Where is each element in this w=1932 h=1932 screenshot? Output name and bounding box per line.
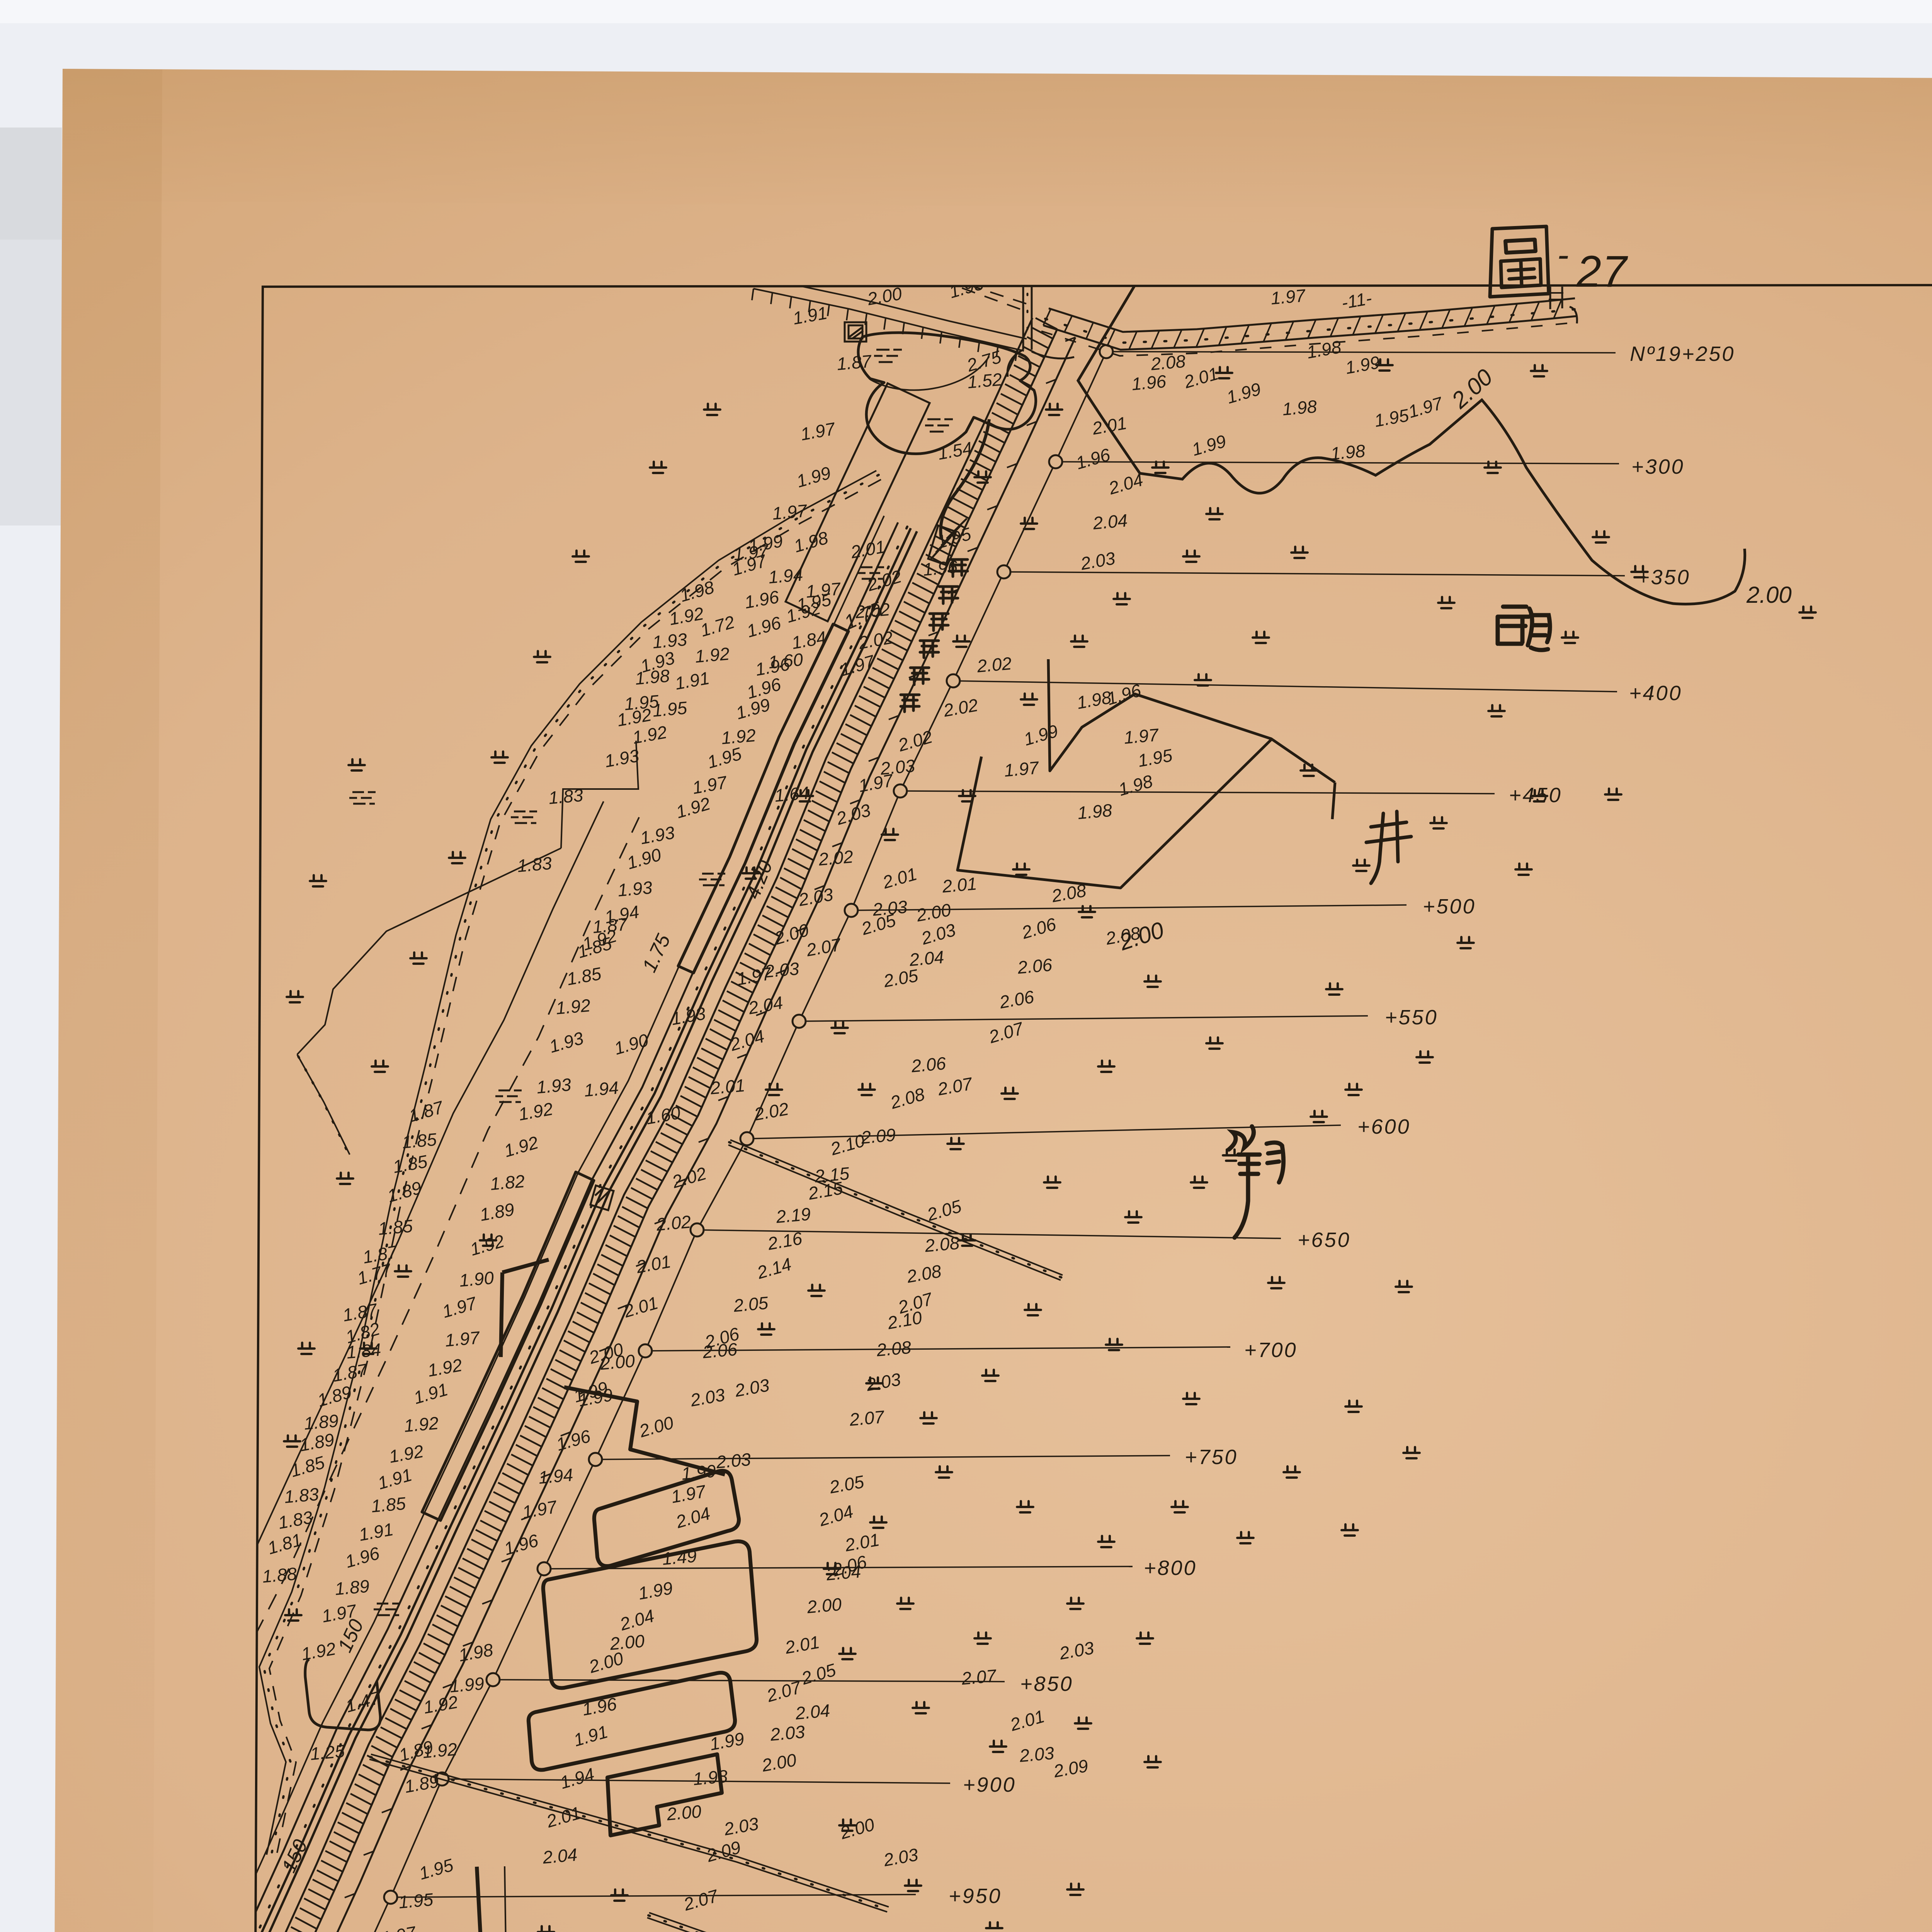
svg-text:1.92: 1.92	[694, 643, 730, 667]
svg-text:2.00: 2.00	[806, 1594, 842, 1617]
svg-text:2.03: 2.03	[763, 958, 800, 981]
svg-text:1.98: 1.98	[1330, 440, 1366, 464]
svg-text:2.04: 2.04	[794, 1700, 831, 1723]
svg-text:+550: +550	[1385, 1006, 1438, 1029]
svg-text:1.92: 1.92	[422, 1739, 458, 1762]
svg-text:+300: +300	[1631, 455, 1685, 478]
svg-text:1.97: 1.97	[1123, 724, 1160, 748]
svg-text:1.87: 1.87	[592, 914, 628, 937]
svg-text:2.05: 2.05	[732, 1293, 769, 1316]
svg-text:2.06: 2.06	[910, 1053, 947, 1076]
svg-text:2.03: 2.03	[1018, 1743, 1055, 1766]
svg-text:1.92: 1.92	[403, 1413, 439, 1436]
svg-text:1.83: 1.83	[516, 853, 553, 876]
svg-text:1.89: 1.89	[334, 1576, 370, 1599]
svg-text:2.01: 2.01	[709, 1075, 746, 1098]
svg-text:2.19: 2.19	[775, 1204, 811, 1227]
svg-text:1.90: 1.90	[458, 1267, 495, 1291]
svg-text:+650: +650	[1298, 1228, 1351, 1252]
svg-text:1.96: 1.96	[1131, 371, 1167, 394]
svg-text:1.99: 1.99	[449, 1673, 485, 1696]
svg-text:+400: +400	[1629, 682, 1682, 705]
svg-text:2.03: 2.03	[769, 1721, 806, 1745]
svg-text:1.98: 1.98	[692, 1766, 728, 1789]
svg-text:+700: +700	[1244, 1338, 1298, 1362]
svg-text:2.06: 2.06	[701, 1339, 738, 1362]
svg-text:1.94: 1.94	[767, 564, 804, 587]
svg-text:+500: +500	[1423, 895, 1476, 918]
svg-text:1.83: 1.83	[283, 1484, 320, 1507]
svg-text:2.02: 2.02	[817, 846, 854, 869]
svg-text:+600: +600	[1357, 1115, 1411, 1138]
svg-text:2.00: 2.00	[1746, 582, 1792, 608]
svg-text:2.02: 2.02	[976, 653, 1012, 676]
svg-text:+850: +850	[1020, 1672, 1073, 1696]
svg-text:1.83: 1.83	[548, 785, 584, 808]
svg-text:2.08: 2.08	[875, 1337, 912, 1360]
svg-text:1.92: 1.92	[555, 995, 591, 1018]
svg-text:2.06: 2.06	[1016, 954, 1053, 978]
svg-text:1.98: 1.98	[634, 665, 670, 689]
svg-text:1.97: 1.97	[805, 578, 842, 602]
svg-text:Nº19+250: Nº19+250	[1630, 342, 1735, 366]
svg-text:1.93: 1.93	[617, 877, 653, 900]
svg-text:1.82: 1.82	[489, 1171, 526, 1194]
svg-text:2.04: 2.04	[541, 1844, 578, 1867]
svg-text:1.95: 1.95	[398, 1889, 434, 1912]
svg-text:1.94: 1.94	[583, 1077, 619, 1100]
svg-text:+800: +800	[1144, 1556, 1197, 1580]
svg-text:1.97: 1.97	[1270, 285, 1306, 308]
svg-text:2.03: 2.03	[715, 1449, 752, 1472]
svg-text:+900: +900	[963, 1773, 1016, 1796]
svg-text:1.97: 1.97	[733, 541, 769, 564]
svg-text:2.08: 2.08	[1150, 351, 1186, 374]
svg-text:2.04: 2.04	[1092, 510, 1128, 533]
svg-text:1.97: 1.97	[444, 1327, 481, 1350]
svg-text:+750: +750	[1185, 1446, 1238, 1469]
svg-text:-: -	[1557, 236, 1569, 274]
svg-text:2.03: 2.03	[871, 896, 908, 920]
svg-text:2.01: 2.01	[941, 873, 978, 896]
svg-text:1.85: 1.85	[377, 1216, 413, 1239]
svg-text:1.93: 1.93	[536, 1074, 572, 1097]
svg-text:1.85: 1.85	[401, 1129, 437, 1152]
svg-text:1.98: 1.98	[1077, 800, 1113, 823]
svg-text:2.00: 2.00	[665, 1801, 702, 1824]
svg-text:1.96: 1.96	[922, 556, 958, 580]
svg-text:1.49: 1.49	[661, 1546, 697, 1569]
svg-text:27: 27	[1576, 247, 1628, 296]
svg-text:1.99: 1.99	[680, 1461, 717, 1484]
svg-text:1.98: 1.98	[1281, 396, 1318, 419]
svg-text:2.07: 2.07	[848, 1406, 885, 1430]
svg-text:1.85: 1.85	[370, 1493, 406, 1516]
svg-text:2.02: 2.02	[854, 599, 891, 622]
svg-text:1.89: 1.89	[303, 1410, 339, 1434]
svg-text:2.07: 2.07	[960, 1665, 997, 1689]
svg-text:1.94: 1.94	[537, 1464, 574, 1488]
svg-text:1.52: 1.52	[966, 369, 1003, 392]
svg-text:2.02: 2.02	[655, 1211, 692, 1235]
svg-text:1.97: 1.97	[771, 500, 808, 524]
svg-text:+950: +950	[949, 1884, 1002, 1908]
svg-text:2.08: 2.08	[923, 1233, 960, 1256]
svg-text:1.87: 1.87	[836, 351, 872, 374]
svg-text:1.25: 1.25	[309, 1741, 345, 1764]
svg-text:1.97: 1.97	[1003, 757, 1040, 781]
svg-text:1.88: 1.88	[261, 1563, 298, 1587]
